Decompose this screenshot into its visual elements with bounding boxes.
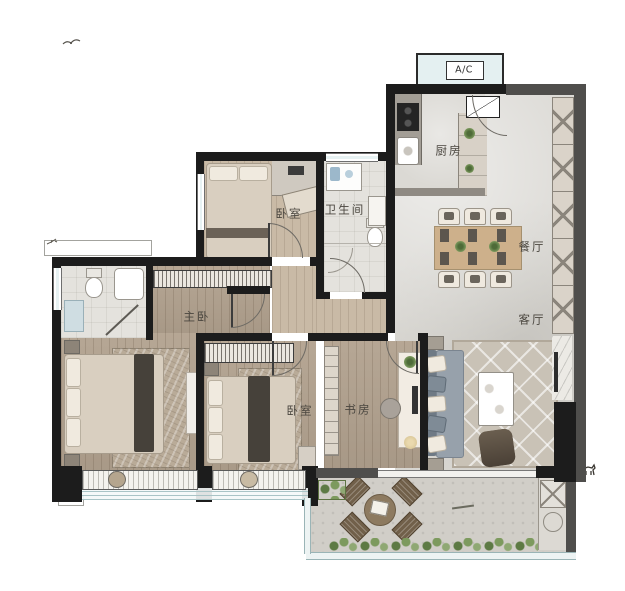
- bedroom-top-door-leaf: [268, 223, 270, 257]
- floor-plan-canvas: A/C: [0, 0, 625, 591]
- master-bay-window: [82, 470, 198, 490]
- bay-basket-decor: [108, 471, 126, 488]
- placemat: [468, 252, 477, 265]
- bedroom-second-label: 卧室: [287, 405, 314, 417]
- bedroom-top-laptop: [288, 166, 304, 175]
- dining-chair: [464, 208, 486, 225]
- bathroom-basin: [345, 170, 353, 178]
- wall-bathroom-bottom-b: [362, 292, 394, 299]
- bedroom-top-pillow: [209, 166, 238, 181]
- toilet-bowl: [367, 227, 383, 247]
- coffee-table: [478, 372, 514, 426]
- wall-cabinet: [552, 285, 574, 334]
- bathroom-window: [326, 153, 378, 162]
- kitchen-lower-counter: [395, 188, 485, 196]
- sofa-pillow-2: [426, 375, 447, 393]
- wall-master-top: [52, 257, 272, 266]
- wall-balcony-top: [316, 468, 378, 478]
- ensuite-tub: [114, 268, 144, 300]
- kitchen-label: 厨房: [436, 145, 463, 157]
- corridor-floor-2: [316, 299, 386, 333]
- dining-label: 餐厅: [519, 241, 546, 253]
- kitchen-plant-2: [465, 164, 474, 173]
- master-bed-runner: [134, 354, 154, 452]
- wall-top-kitchen: [390, 84, 506, 94]
- bedroom2-bed-runner: [248, 376, 270, 462]
- bedroom2-pillow-2: [208, 407, 223, 433]
- wall-cabinet: [552, 191, 574, 240]
- bedroom2-pillow-3: [208, 434, 223, 460]
- ensuite-window: [53, 268, 62, 310]
- wall-bedroom2-top-a: [196, 333, 272, 341]
- dining-chair: [490, 271, 512, 288]
- dining-table-plant-2: [489, 241, 500, 252]
- ensuite-toilet-bowl: [85, 277, 103, 298]
- bedroom2-bay-window: [212, 470, 306, 490]
- study-chair: [380, 398, 401, 419]
- bedroom2-door-leaf: [272, 341, 274, 375]
- wall-cabinet: [552, 238, 574, 287]
- branch-decoration: [46, 236, 64, 246]
- balcony-planter: [318, 480, 346, 500]
- wall-living-right-column: [554, 402, 576, 482]
- living-label: 客厅: [519, 314, 546, 326]
- wall-master-bedroom2-divider: [196, 333, 204, 480]
- shower-divider-line: [324, 243, 386, 244]
- balcony-railing-left: [304, 498, 311, 554]
- bay-basket-decor-2: [240, 471, 258, 488]
- ac-label: A/C: [455, 65, 473, 75]
- wall-ensuite-right: [146, 266, 153, 340]
- dining-table-plant: [455, 241, 466, 252]
- sofa-pillow-5: [426, 434, 447, 453]
- dining-chair: [490, 208, 512, 225]
- kitchen-plant: [464, 128, 475, 139]
- sofa-pillow-3: [426, 395, 446, 413]
- balcony-railing-bottom: [306, 552, 576, 560]
- wall-corner-bottom-left: [52, 466, 82, 502]
- ensuite-shower-mat: [64, 300, 84, 332]
- wall-cabinet: [552, 144, 574, 193]
- bedroom2-pillow: [208, 380, 223, 406]
- master-nightstand-top: [64, 340, 80, 354]
- placemat: [440, 229, 449, 242]
- sofa-pillow-4: [426, 415, 447, 434]
- wall-cabinet: [552, 97, 574, 146]
- wall-bathroom-left: [316, 152, 324, 299]
- placemat: [497, 229, 506, 242]
- master-pillow-3: [66, 418, 81, 447]
- placemat: [440, 252, 449, 265]
- tv: [554, 352, 558, 392]
- utility-tile: [540, 480, 566, 508]
- bathroom-label: 卫生间: [325, 204, 366, 216]
- study-bookshelf: [324, 346, 339, 456]
- bathroom-cabinet: [368, 196, 386, 226]
- wall-bathroom-bottom-a: [316, 292, 330, 299]
- wall-bedroom2-top-b: [308, 333, 388, 341]
- bathroom-sink-blue: [330, 167, 340, 181]
- bedroom-top-pillow-2: [239, 166, 268, 181]
- master-bedroom-label: 主卧: [184, 311, 211, 323]
- bird-decoration: [62, 36, 82, 48]
- bedroom-top-window: [197, 174, 205, 230]
- balcony-sliding-door: [378, 470, 536, 478]
- kitchen-sink: [397, 137, 419, 165]
- bedroom2-nightstand: [204, 362, 219, 376]
- placemat: [497, 252, 506, 265]
- floor-drain: [543, 512, 563, 532]
- study-label: 书房: [345, 404, 372, 416]
- armchair: [478, 428, 517, 468]
- corridor-floor: [272, 266, 316, 333]
- dining-chair: [438, 208, 460, 225]
- wall-balcony-right: [566, 478, 576, 556]
- master-door-leaf: [231, 294, 233, 327]
- study-door-leaf: [416, 341, 418, 373]
- sofa-pillow: [426, 355, 447, 373]
- wall-study-right: [420, 333, 428, 476]
- master-pillow-2: [66, 388, 81, 417]
- master-pillow: [66, 358, 81, 387]
- dining-chair: [438, 271, 460, 288]
- stove: [397, 103, 419, 131]
- balcony-greenery: [328, 538, 538, 552]
- wall-master-door-stub: [227, 286, 270, 294]
- placemat: [468, 229, 477, 242]
- dining-chair: [464, 271, 486, 288]
- study-monitor: [412, 386, 418, 414]
- bedroom-top-label: 卧室: [276, 208, 303, 220]
- study-lamp: [404, 436, 417, 449]
- bedroom-top-bed-throw: [206, 228, 270, 238]
